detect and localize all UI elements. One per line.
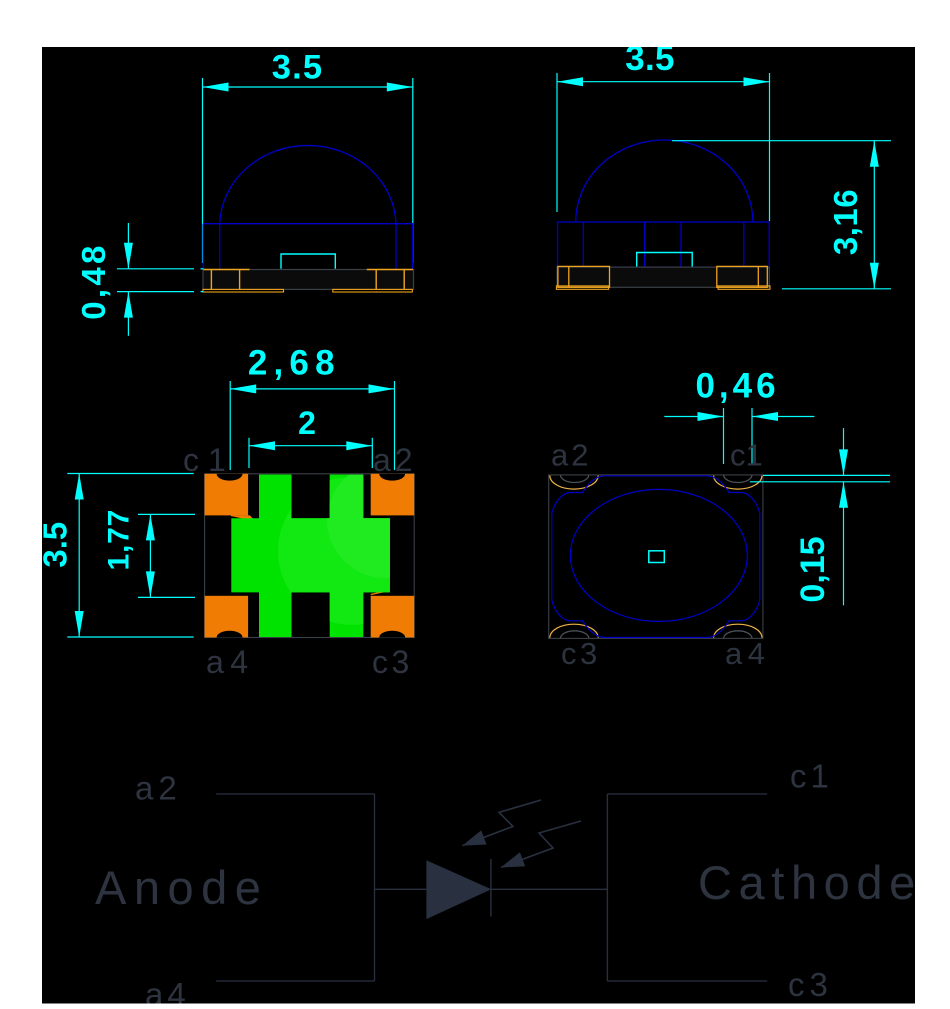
- svg-text:a4: a4: [725, 636, 770, 671]
- svg-text:3.5: 3.5: [37, 522, 74, 568]
- svg-text:c3: c3: [561, 636, 601, 671]
- svg-text:3.5: 3.5: [272, 48, 324, 86]
- svg-text:2: 2: [298, 405, 318, 441]
- svg-text:a2: a2: [373, 442, 417, 478]
- svg-text:0,15: 0,15: [794, 536, 832, 602]
- svg-text:Cathode: Cathode: [698, 856, 922, 909]
- svg-text:3,16: 3,16: [827, 189, 864, 255]
- svg-text:0,46: 0,46: [695, 367, 779, 406]
- svg-text:Anode: Anode: [95, 861, 268, 914]
- svg-text:0,48: 0,48: [75, 242, 112, 319]
- svg-text:a2: a2: [135, 770, 182, 807]
- svg-text:c3: c3: [372, 644, 413, 680]
- svg-text:2,68: 2,68: [248, 343, 341, 382]
- svg-text:c1: c1: [730, 438, 763, 473]
- svg-text:c3: c3: [788, 966, 833, 1003]
- svg-text:a2: a2: [551, 438, 591, 473]
- svg-text:1,77: 1,77: [103, 509, 136, 571]
- svg-text:c1: c1: [183, 442, 235, 478]
- svg-text:a4: a4: [206, 644, 254, 680]
- svg-text:c1: c1: [790, 758, 833, 795]
